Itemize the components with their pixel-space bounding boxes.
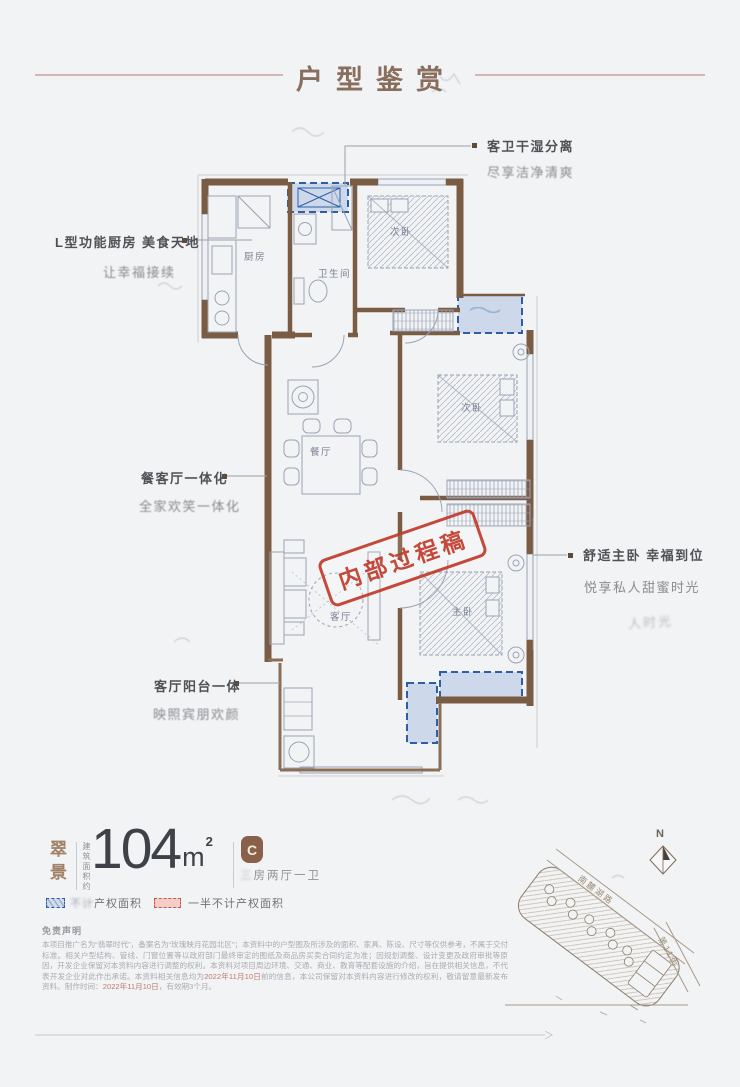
room-label-bedroom2-top: 次卧 xyxy=(390,224,412,238)
room-label-dining: 餐厅 xyxy=(310,444,332,458)
area-value: 104m2 xyxy=(91,824,213,874)
callout-master-line1: 舒适主卧 幸福到位 xyxy=(583,545,704,564)
disclaimer-date-1: 2022年11月10日 xyxy=(204,972,261,981)
callout-kitchen-line2: 让幸福接续 xyxy=(103,262,176,281)
area-unit: m xyxy=(182,844,205,871)
watermark-ghost-text: 人时光 xyxy=(627,610,673,632)
floorplan-poster: 户型鉴赏 客卫干湿分离 尽享洁净清爽 L型功能厨房 美食天地 让幸福接续 餐客厅… xyxy=(0,0,740,1087)
legend-red-label: 一半不计产权面积 xyxy=(188,895,284,911)
compass-icon xyxy=(650,846,676,874)
legend-blue-prefix-smudged: 不计 xyxy=(70,898,94,910)
project-name: 翠景 xyxy=(44,840,69,886)
header-line-left xyxy=(35,74,283,76)
legend-blue-label: 不计产权面积 xyxy=(70,895,142,911)
disclaimer-heading: 免责声明 xyxy=(42,924,82,937)
room-label-kitchen: 厨房 xyxy=(244,249,266,263)
room-label-bathroom: 卫生间 xyxy=(318,266,351,280)
header-line-right xyxy=(475,74,705,76)
callout-bath-line1: 客卫干湿分离 xyxy=(487,136,574,155)
room-label-bedroom2-mid: 次卧 xyxy=(461,400,483,414)
callout-kitchen-line1: L型功能厨房 美食天地 xyxy=(55,232,200,251)
callout-balcony-line2: 映照宾朋欢颜 xyxy=(153,704,240,723)
page-title: 户型鉴赏 xyxy=(296,58,456,97)
layout-text: 三房两厅一卫 xyxy=(240,867,321,883)
disclaimer-part3: ，有效期3个月。 xyxy=(159,982,216,991)
unit-type-badge: C xyxy=(241,836,263,863)
disclaimer-date-2: 2022年11月10日 xyxy=(103,982,159,991)
layout-prefix-smudged: 三 xyxy=(240,870,254,882)
compass-north-label: N xyxy=(656,828,664,840)
disclaimer-body: 本项目推广名为“翡翠时代”，备案名为“玫瑰映月花园北区”；本资料中的户型图及所涉… xyxy=(42,940,508,993)
callout-master-line2: 悦享私人甜蜜时光 xyxy=(584,577,700,596)
legend-blue-text: 产权面积 xyxy=(94,898,142,910)
callout-balcony-line1: 客厅阳台一体 xyxy=(154,676,241,695)
info-divider-2 xyxy=(233,842,234,888)
area-number: 104 xyxy=(91,824,180,874)
legend-red-swatch xyxy=(154,898,181,908)
layout-rooms: 房两厅一卫 xyxy=(254,870,322,882)
callout-bath-line2: 尽享洁净清爽 xyxy=(487,162,574,181)
area-superscript: 2 xyxy=(206,835,213,848)
legend-blue-swatch xyxy=(46,898,65,908)
room-label-living: 客厅 xyxy=(330,609,352,623)
bottom-rule xyxy=(35,1031,552,1039)
info-divider-1 xyxy=(76,842,77,890)
site-plan xyxy=(505,849,700,1023)
callout-dining-line2: 全家欢笑一体化 xyxy=(139,496,241,515)
room-label-master: 主卧 xyxy=(452,604,474,618)
callout-dining-line1: 餐客厅一体化 xyxy=(141,468,228,487)
